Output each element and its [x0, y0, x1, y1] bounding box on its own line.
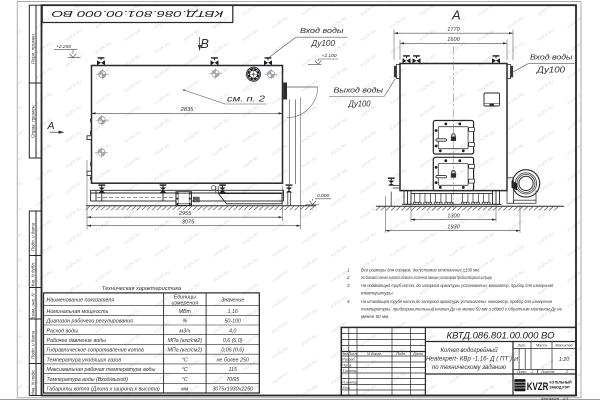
svg-text:Справ. примен.: Справ. примен. [31, 104, 36, 138]
svg-text:Формат: Формат [541, 397, 559, 400]
svg-text:А3: А3 [562, 397, 569, 400]
svg-text:°С: °С [182, 357, 188, 363]
svg-text:Номинальная мощность: Номинальная мощность [47, 309, 109, 315]
svg-text:1930: 1930 [447, 224, 460, 230]
svg-text:по техническому заданию: по техническому заданию [432, 365, 507, 371]
svg-text:70/95: 70/95 [226, 377, 239, 383]
svg-text:мм: мм [181, 387, 189, 393]
svg-text:1300: 1300 [447, 213, 460, 219]
svg-text:2955: 2955 [178, 211, 192, 217]
svg-text:KVZR: KVZR [527, 381, 549, 393]
svg-text:50-100: 50-100 [224, 319, 241, 325]
svg-text:Рабочее давление воды: Рабочее давление воды [47, 338, 106, 344]
svg-text:Все размеры для справок, допус: Все размеры для справок, допустимое откл… [361, 268, 480, 273]
svg-text:В: В [201, 37, 209, 51]
svg-text:Масштаб: Масштаб [555, 344, 573, 348]
svg-text:°С: °С [182, 377, 188, 383]
svg-text:Инв. N подл.: Инв. N подл. [31, 369, 36, 395]
svg-text:4,0: 4,0 [229, 328, 236, 334]
svg-text:3075: 3075 [182, 219, 195, 225]
svg-text:МПа (кгс/см2): МПа (кгс/см2) [167, 338, 202, 344]
svg-text:Подп.: Подп. [396, 352, 406, 356]
svg-text:Вход воды: Вход воды [300, 26, 344, 35]
svg-text:Разраб.: Разраб. [342, 358, 355, 362]
svg-text:3075х1930х2250: 3075х1930х2250 [212, 387, 253, 393]
svg-text:0,6 (6,0): 0,6 (6,0) [223, 338, 243, 344]
svg-text:3: 3 [347, 283, 350, 288]
svg-text:0.000: 0.000 [317, 193, 330, 199]
svg-text:Ду100: Ду100 [536, 65, 566, 74]
svg-text:1770: 1770 [447, 27, 460, 33]
svg-text:ЗАВОД РЭП: ЗАВОД РЭП [550, 386, 571, 390]
svg-text:Лист: Лист [347, 352, 358, 356]
svg-text:+2.100: +2.100 [322, 53, 337, 59]
svg-text:КВТД.086.801.00.000 ВО: КВТД.086.801.00.000 ВО [447, 329, 556, 340]
svg-text:Взам. инв. N: Взам. инв. N [31, 293, 36, 320]
svg-text:Диапазон рабочего регулировани: Диапазон рабочего регулирования [46, 319, 134, 325]
svg-text:Т.контр.: Т.контр. [342, 369, 357, 373]
svg-text:На подводящей труб котла, до: На подводящей труб котла, до запорной ар… [361, 282, 553, 288]
svg-text:Утв.: Утв. [342, 386, 350, 390]
svg-text:1: 1 [347, 268, 350, 273]
svg-text:МПа (кгс/см2): МПа (кгс/см2) [167, 348, 202, 354]
svg-text:Дата: Дата [412, 352, 423, 356]
svg-text:И: И [514, 357, 518, 363]
svg-text:Вход воды: Вход воды [530, 52, 573, 61]
svg-text:N докум.: N докум. [367, 352, 382, 356]
svg-text:Выход воды: Выход воды [334, 86, 384, 95]
svg-text:1:20: 1:20 [559, 357, 570, 363]
svg-text:115: 115 [228, 367, 236, 373]
svg-text:м3/ч: м3/ч [179, 328, 190, 334]
svg-text:1: 1 [531, 370, 533, 374]
svg-text:Котел водогрейный: Котел водогрейный [440, 347, 498, 354]
svg-text:Ду100: Ду100 [348, 100, 372, 109]
svg-text:0,06 (0,6): 0,06 (0,6) [221, 348, 244, 354]
svg-text:Лит.: Лит. [517, 344, 527, 348]
svg-text:Пров.: Пров. [342, 363, 352, 367]
svg-text:%: % [182, 319, 187, 325]
svg-text:Максимальная рабочая температу: Максимальная рабочая температура воды [47, 367, 156, 373]
svg-text:На отводящей трубе котла,до за: На отводящей трубе котла,до запорной арм… [361, 298, 552, 304]
svg-text:Лист: Лист [516, 370, 527, 374]
svg-text:температуры.: температуры. [361, 291, 394, 296]
svg-text:Расход воды: Расход воды [47, 328, 78, 334]
svg-text:измерения: измерения [172, 300, 199, 306]
svg-text:А: А [451, 8, 461, 23]
svg-text:Подп. и дата: Подп. и дата [31, 222, 36, 251]
svg-text:1600: 1600 [447, 37, 460, 43]
svg-text:°С: °С [182, 367, 188, 373]
svg-text:не более 250: не более 250 [217, 357, 249, 363]
svg-text:менее 50 мм.: менее 50 мм. [361, 314, 390, 319]
svg-text:А: А [47, 120, 55, 132]
svg-text:Габариты котла (Длина х ширина: Габариты котла (Длина х ширина х высота) [47, 387, 161, 393]
svg-text:Перв. примен.: Перв. примен. [31, 33, 36, 64]
svg-text:Масса: Масса [536, 344, 547, 348]
svg-text:МВт: МВт [179, 309, 192, 315]
svg-text:Техническая характеристика: Техническая характеристика [102, 286, 181, 292]
svg-text:4: 4 [347, 299, 350, 304]
svg-text:2: 2 [346, 275, 350, 280]
svg-text:Heatexpert- КВр -1,16- Д ( ПТ: Heatexpert- КВр -1,16- Д ( ПТ ) [426, 357, 512, 363]
svg-text:Листов: Листов [540, 370, 555, 374]
svg-text:КВТД.086.801.00.000 ВО: КВТД.086.801.00.000 ВО [50, 9, 223, 18]
svg-text:Температура воды (Вход/выход): Температура воды (Вход/выход) [47, 377, 129, 383]
svg-text:1,16: 1,16 [228, 309, 238, 315]
svg-text:2835: 2835 [180, 107, 194, 113]
svg-text:температуры, предохранительный: температуры, предохранительный клапан Ду… [361, 306, 562, 312]
svg-text:КОТЕЛЬНЫЙ: КОТЕЛЬНЫЙ [550, 381, 573, 385]
svg-text:Н.контр.: Н.контр. [342, 380, 358, 384]
svg-text:Ду100: Ду100 [310, 39, 335, 48]
svg-text:Значение: Значение [221, 298, 244, 304]
svg-text:Гидравлическое сопротивление к: Гидравлическое сопротивление котла [47, 348, 144, 354]
svg-text:+2.250: +2.250 [56, 44, 71, 50]
svg-text:Подп. и дата: Подп. и дата [31, 330, 36, 359]
svg-text:2: 2 [565, 370, 568, 374]
svg-text:см. п. 2: см. п. 2 [227, 94, 265, 104]
svg-text:На боковой стенке котла в обла: На боковой стенке котла в области топочн… [361, 275, 492, 280]
svg-text:Инв. N дубл.: Инв. N дубл. [31, 262, 36, 288]
svg-text:Наименование показателя: Наименование показателя [47, 298, 115, 304]
svg-text:Температура уходящих газов: Температура уходящих газов [47, 357, 122, 363]
